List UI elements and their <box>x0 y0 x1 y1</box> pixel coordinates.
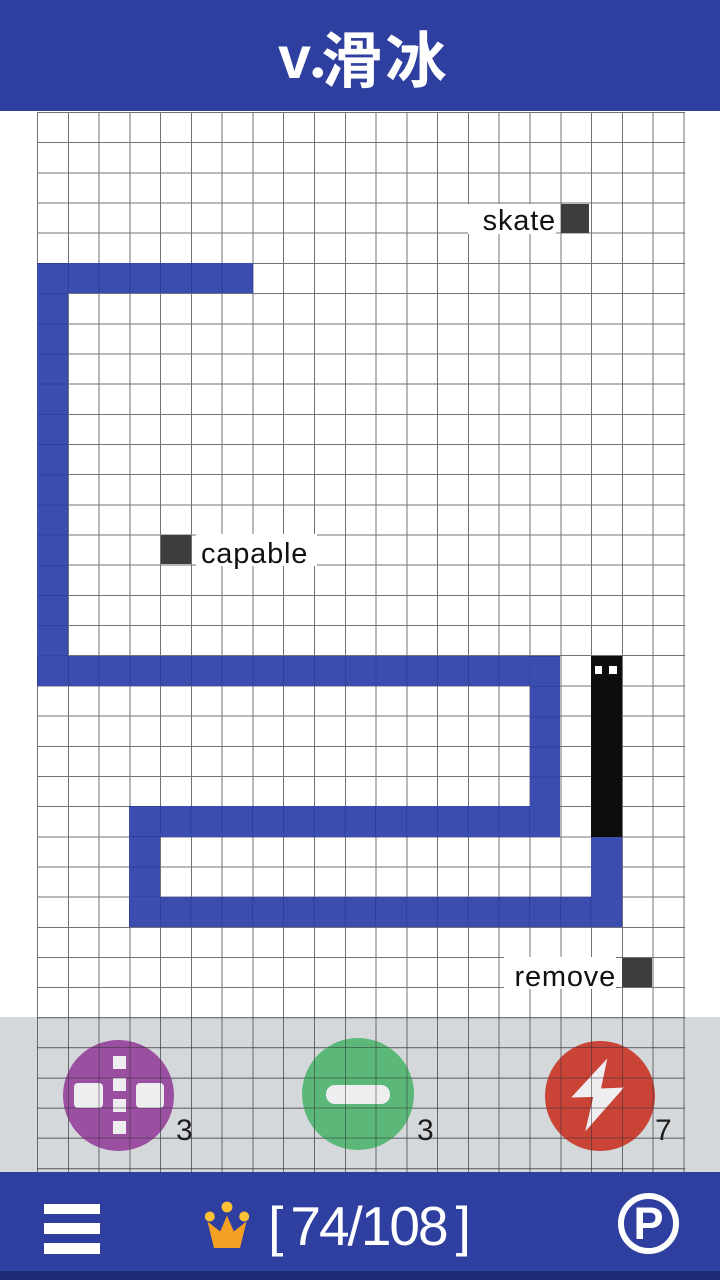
svg-text:v: v <box>278 25 311 91</box>
